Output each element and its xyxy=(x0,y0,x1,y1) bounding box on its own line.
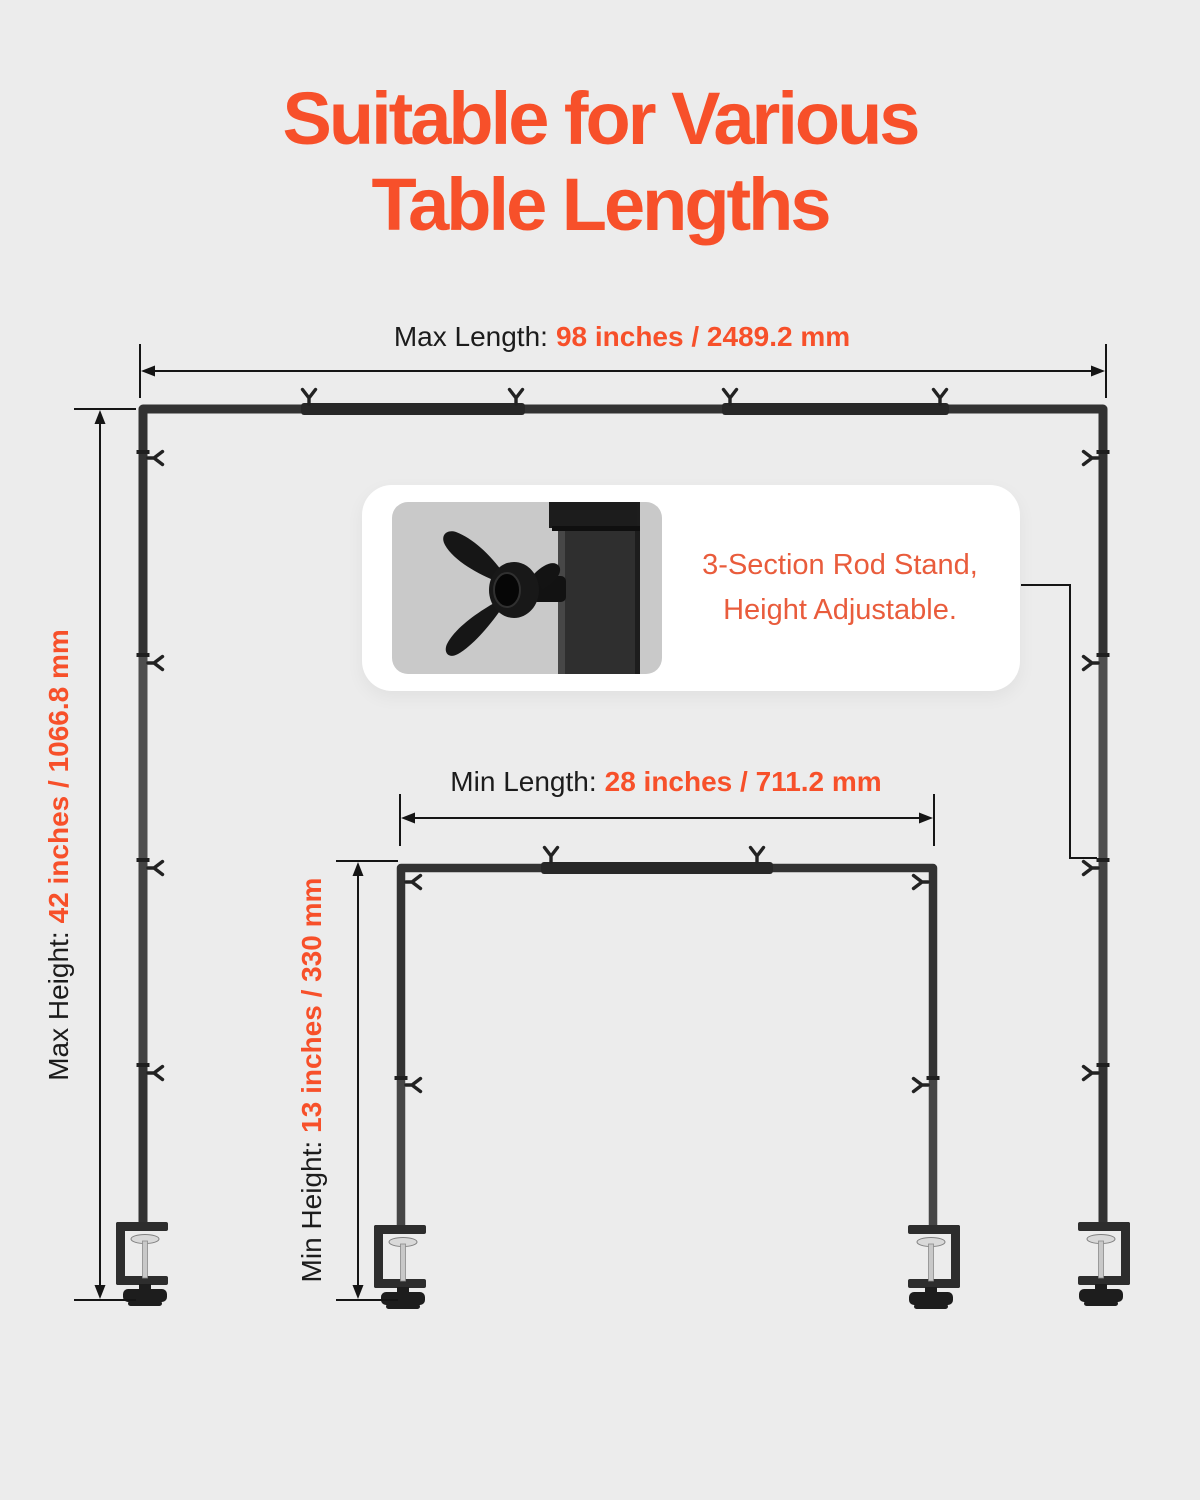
infographic: Suitable for Various Table Lengths xyxy=(0,0,1200,1500)
max-height-value: 42 inches / 1066.8 mm xyxy=(43,629,75,923)
min-length-value: 28 inches / 711.2 mm xyxy=(605,766,882,798)
max-height-caption: Max Height: xyxy=(43,931,75,1080)
rod-knob-image xyxy=(392,502,662,674)
min-length-caption: Min Length: xyxy=(450,766,596,798)
callout-text: 3-Section Rod Stand, Height Adjustable. xyxy=(668,485,1012,691)
max-length-value: 98 inches / 2489.2 mm xyxy=(556,321,850,353)
min-height-label: Min Height: 13 inches / 330 mm xyxy=(291,780,333,1380)
callout-line-1: 3-Section Rod Stand, xyxy=(702,543,978,588)
callout-connector-line xyxy=(1021,585,1097,858)
callout-line-2: Height Adjustable. xyxy=(723,588,957,633)
min-height-value: 13 inches / 330 mm xyxy=(296,878,328,1133)
small-frame xyxy=(374,848,960,1310)
max-length-caption: Max Length: xyxy=(394,321,548,353)
min-height-dimension xyxy=(336,861,398,1300)
wing-nut-illustration xyxy=(392,502,662,674)
callout-card: 3-Section Rod Stand, Height Adjustable. xyxy=(362,485,1020,691)
max-height-dimension xyxy=(74,409,136,1300)
max-height-label: Max Height: 42 inches / 1066.8 mm xyxy=(38,555,80,1155)
pole-joints xyxy=(395,1076,940,1080)
max-length-label: Max Length: 98 inches / 2489.2 mm xyxy=(322,316,922,358)
min-height-caption: Min Height: xyxy=(296,1141,328,1283)
min-length-label: Min Length: 28 inches / 711.2 mm xyxy=(366,761,966,803)
frame-diagram xyxy=(0,0,1200,1500)
